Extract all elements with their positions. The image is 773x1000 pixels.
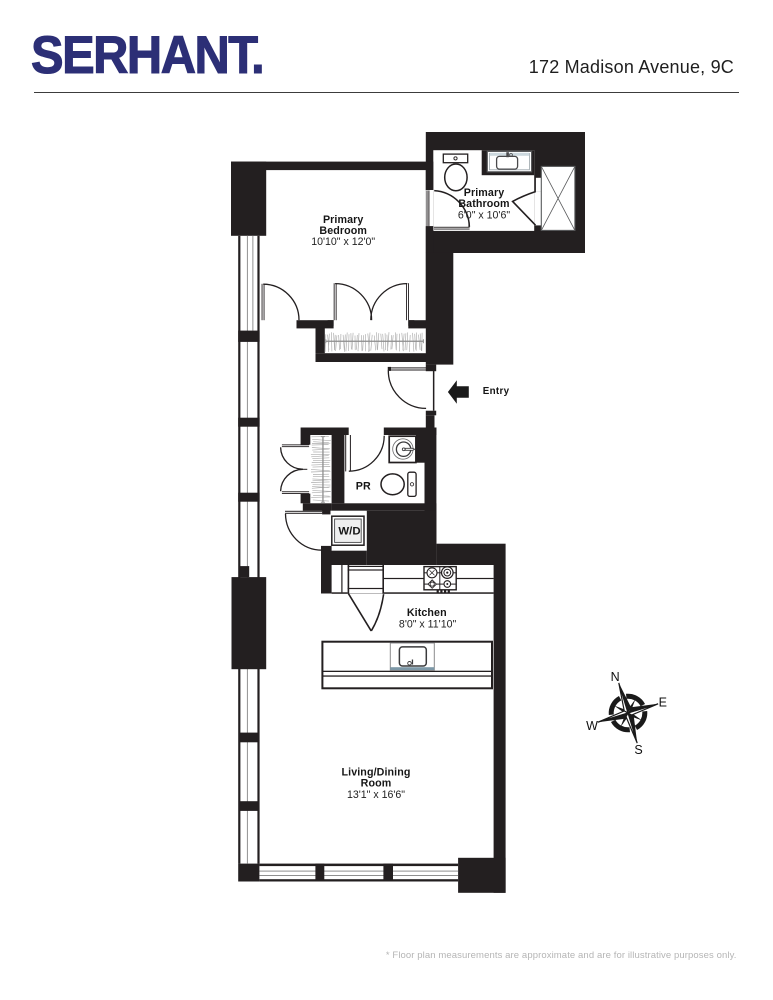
svg-text:Primary: Primary bbox=[464, 187, 505, 199]
svg-text:13'1" x 16'6": 13'1" x 16'6" bbox=[347, 789, 405, 801]
svg-text:N: N bbox=[611, 670, 620, 684]
svg-text:Kitchen: Kitchen bbox=[407, 607, 447, 619]
svg-text:W: W bbox=[586, 719, 598, 733]
svg-text:Living/Dining: Living/Dining bbox=[342, 767, 411, 779]
svg-text:6'0" x 10'6": 6'0" x 10'6" bbox=[458, 210, 510, 222]
svg-text:10'10" x 12'0": 10'10" x 12'0" bbox=[311, 236, 375, 248]
svg-text:Room: Room bbox=[361, 778, 392, 790]
svg-text:8'0" x 11'10": 8'0" x 11'10" bbox=[399, 619, 457, 631]
svg-text:E: E bbox=[659, 696, 667, 710]
svg-text:S: S bbox=[634, 743, 642, 757]
svg-text:Bathroom: Bathroom bbox=[458, 198, 509, 210]
svg-text:W/D: W/D bbox=[338, 526, 360, 538]
svg-text:Entry: Entry bbox=[483, 386, 510, 397]
svg-text:PR: PR bbox=[356, 480, 371, 492]
